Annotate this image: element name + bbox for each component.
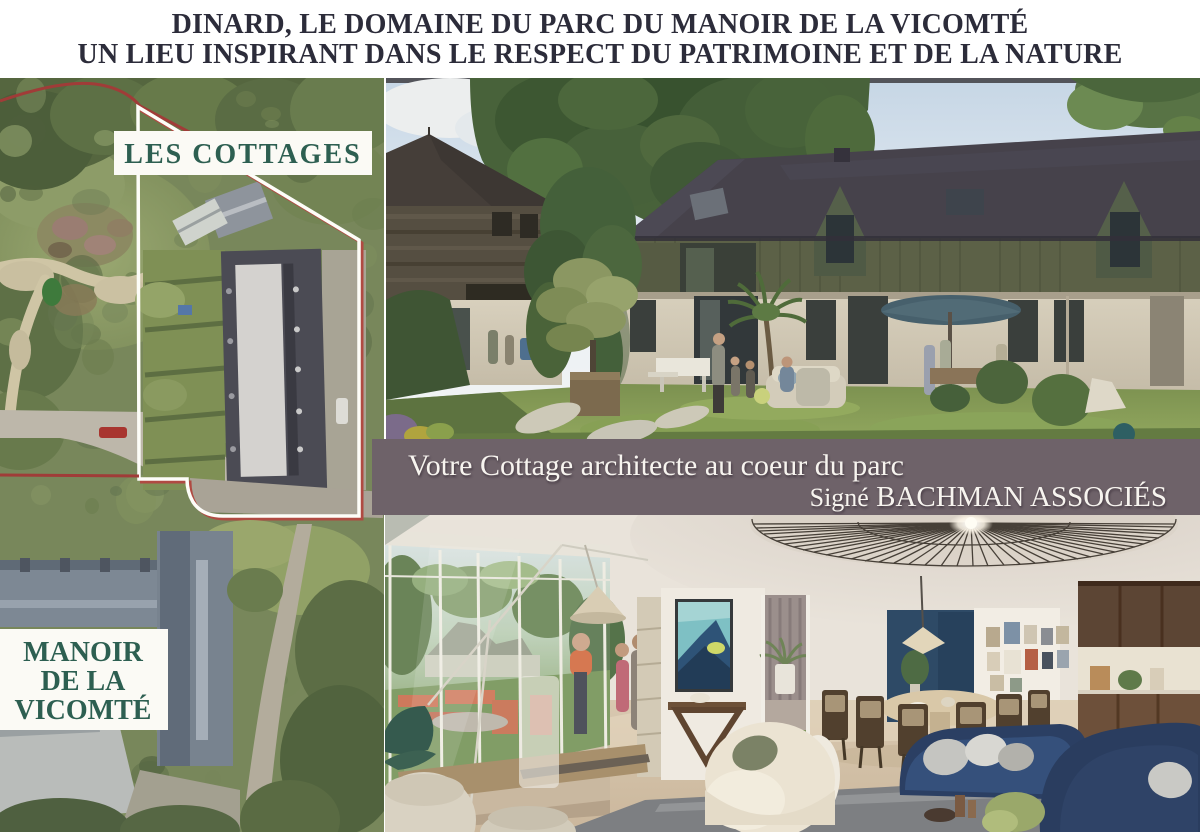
svg-text:LES COTTAGES: LES COTTAGES [124,139,361,170]
svg-text:DE LA: DE LA [41,666,127,697]
svg-text:VICOMTÉ: VICOMTÉ [15,695,152,726]
svg-text:MANOIR: MANOIR [23,637,144,668]
